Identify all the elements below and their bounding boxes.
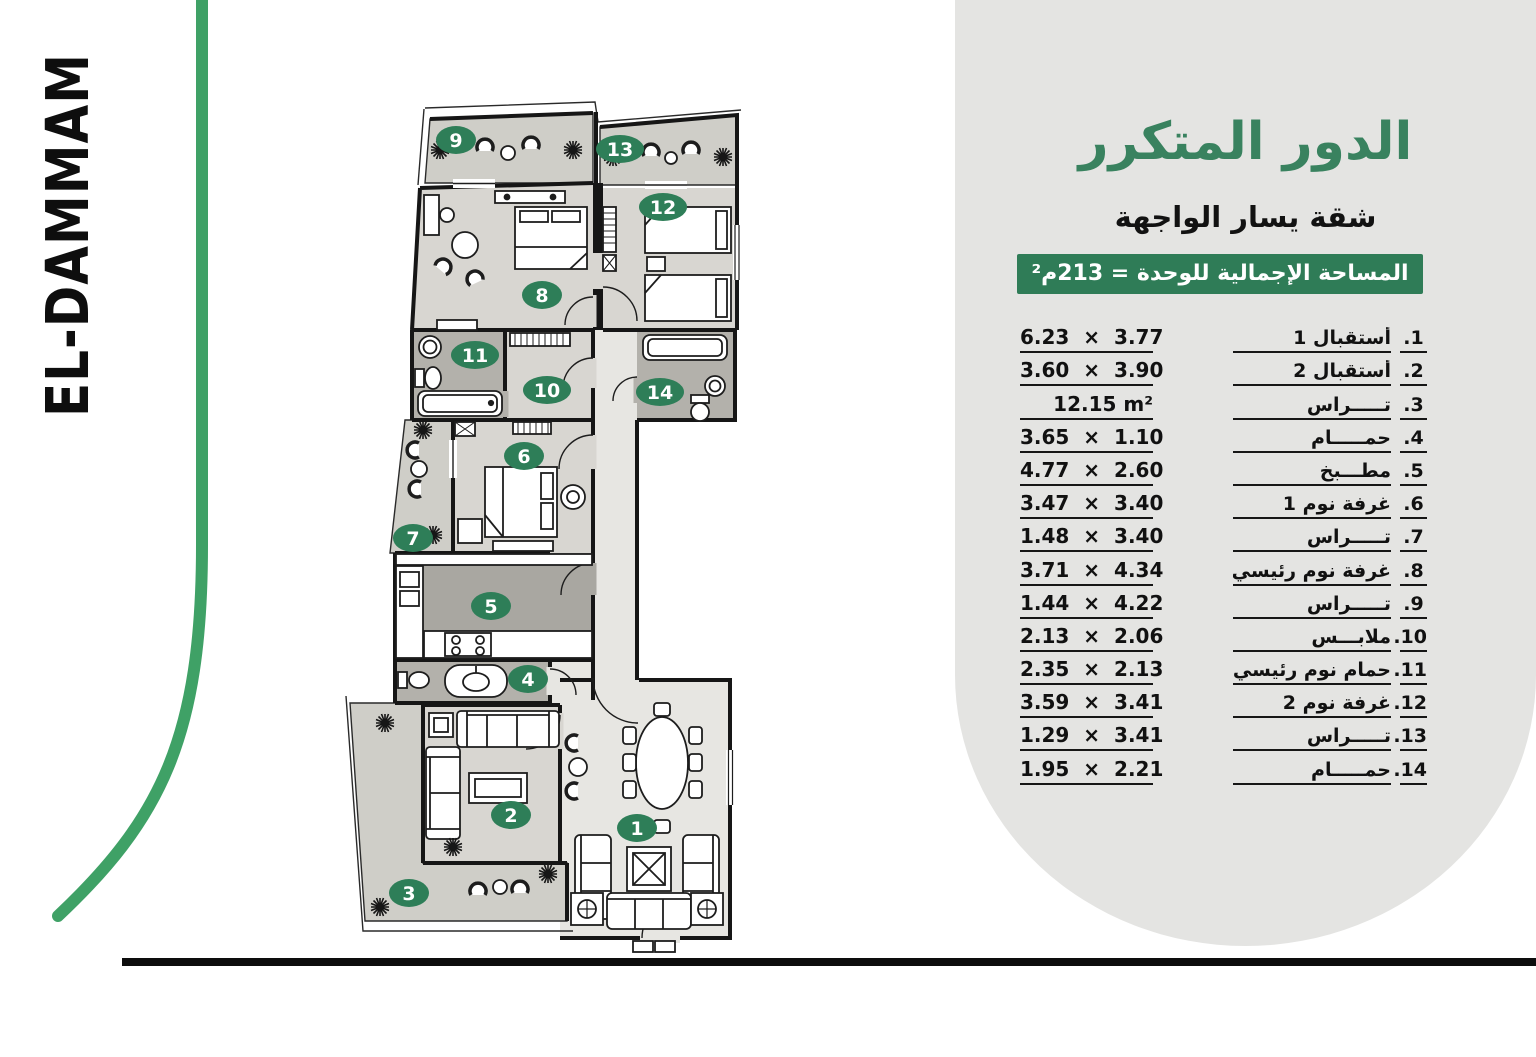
room-number: 14. [1400, 759, 1427, 785]
room-badge-12: 12 [639, 193, 687, 221]
room-name: تـــــراس [1233, 593, 1391, 619]
room-badge-8: 8 [522, 281, 562, 309]
room-number: 9. [1400, 593, 1427, 619]
svg-text:5: 5 [484, 596, 497, 618]
room-dims: 12.15 m² [1020, 392, 1153, 420]
room-name: حمـــــام [1233, 427, 1391, 453]
baseline-rule [122, 958, 1536, 966]
room-row: 8.غرفة نوم رئيسي3.71 × 4.34 [1020, 552, 1427, 585]
room-badge-3: 3 [389, 879, 429, 907]
room-badge-1: 1 [617, 814, 657, 842]
room-number: 1. [1400, 327, 1427, 353]
floor-plan-diagram: 1 2 3 4 5 6 7 8 9 10 11 12 13 14 [345, 95, 745, 955]
room-name: ملابـــس [1233, 626, 1391, 652]
room-row: 9.تـــــراس1.44 × 4.22 [1020, 586, 1427, 619]
svg-text:13: 13 [607, 139, 633, 161]
room-row: 6.غرفة نوم 13.47 × 3.40 [1020, 486, 1427, 519]
svg-text:8: 8 [535, 285, 548, 307]
room-name: حمام نوم رئيسي [1233, 659, 1391, 685]
room-dims: 1.48 × 3.40 [1020, 524, 1153, 552]
room-row: 11.حمام نوم رئيسي2.35 × 2.13 [1020, 652, 1427, 685]
room-badge-6: 6 [504, 442, 544, 470]
room-dims: 6.23 × 3.77 [1020, 325, 1153, 353]
room-row: 14.حمـــــام1.95 × 2.21 [1020, 751, 1427, 784]
room-dims: 1.44 × 4.22 [1020, 591, 1153, 619]
room-badge-5: 5 [471, 592, 511, 620]
svg-text:10: 10 [534, 380, 560, 402]
room-row: 10.ملابـــس2.13 × 2.06 [1020, 619, 1427, 652]
svg-text:2: 2 [504, 805, 517, 827]
room-dims: 3.47 × 3.40 [1020, 491, 1153, 519]
svg-text:1: 1 [630, 818, 643, 840]
svg-text:11: 11 [462, 345, 488, 367]
room-name: غرفة نوم 2 [1233, 692, 1391, 718]
room-name: غرفة نوم 1 [1233, 493, 1391, 519]
room-number: 10. [1400, 626, 1427, 652]
room-row: 7.تـــــراس1.48 × 3.40 [1020, 519, 1427, 552]
svg-text:6: 6 [517, 446, 530, 468]
room-dims: 3.59 × 3.41 [1020, 690, 1153, 718]
svg-text:4: 4 [521, 669, 534, 691]
room-name: تـــــراس [1233, 725, 1391, 751]
room-number: 2. [1400, 360, 1427, 386]
room-row: 4.حمـــــام3.65 × 1.10 [1020, 420, 1427, 453]
room-number: 6. [1400, 493, 1427, 519]
room-number: 11. [1400, 659, 1427, 685]
rooms-list: 1.أستقبال 16.23 × 3.77 2.أستقبال 23.60 ×… [1020, 320, 1427, 785]
room-badge-9: 9 [436, 126, 476, 154]
room-name: مطـــبخ [1233, 460, 1391, 486]
room-name: أستقبال 2 [1233, 360, 1391, 386]
room-name: تـــــراس [1233, 526, 1391, 552]
floorplan-sheet: { "brand": { "name": "EL-DAMMAM" }, "pan… [0, 0, 1536, 1057]
svg-text:12: 12 [650, 197, 676, 219]
room-badge-10: 10 [523, 376, 571, 404]
room-name: تـــــراس [1233, 394, 1391, 420]
page-subtitle: شقة يسار الواجهة [955, 200, 1536, 234]
svg-text:9: 9 [449, 130, 462, 152]
room-row: 1.أستقبال 16.23 × 3.77 [1020, 320, 1427, 353]
area-banner: المساحة الإجمالية للوحدة = 213م² [1017, 254, 1423, 294]
room-number: 7. [1400, 526, 1427, 552]
room-badge-14: 14 [636, 378, 684, 406]
room-row: 13.تـــــراس1.29 × 3.41 [1020, 718, 1427, 751]
room-number: 13. [1400, 725, 1427, 751]
info-panel: الدور المتكرر شقة يسار الواجهة المساحة ا… [955, 0, 1536, 946]
green-curve-decoration [0, 0, 260, 1057]
room-name: غرفة نوم رئيسي [1233, 560, 1391, 586]
room-row: 5.مطـــبخ4.77 × 2.60 [1020, 453, 1427, 486]
room-name: حمـــــام [1233, 759, 1391, 785]
room-badge-11: 11 [451, 341, 499, 369]
room-row: 2.أستقبال 23.60 × 3.90 [1020, 353, 1427, 386]
room-number: 5. [1400, 460, 1427, 486]
room-badge-4: 4 [508, 665, 548, 693]
room-dims: 3.65 × 1.10 [1020, 425, 1153, 453]
page-title: الدور المتكرر [955, 112, 1536, 172]
room-name: أستقبال 1 [1233, 327, 1391, 353]
room-badge-13: 13 [596, 135, 644, 163]
room-badge-7: 7 [393, 524, 433, 552]
room-dims: 3.71 × 4.34 [1020, 558, 1153, 586]
svg-text:3: 3 [402, 883, 415, 905]
svg-text:14: 14 [647, 382, 673, 404]
room-number: 12. [1400, 692, 1427, 718]
room-number: 4. [1400, 427, 1427, 453]
room-dims: 2.35 × 2.13 [1020, 657, 1153, 685]
svg-text:7: 7 [406, 528, 419, 550]
room-number: 3. [1400, 394, 1427, 420]
room-dims: 4.77 × 2.60 [1020, 458, 1153, 486]
room-dims: 2.13 × 2.06 [1020, 624, 1153, 652]
room-number: 8. [1400, 560, 1427, 586]
room-badge-2: 2 [491, 801, 531, 829]
room-dims: 1.95 × 2.21 [1020, 757, 1153, 785]
room-row: 3.تـــــراس12.15 m² [1020, 386, 1427, 419]
room-dims: 3.60 × 3.90 [1020, 358, 1153, 386]
room-dims: 1.29 × 3.41 [1020, 723, 1153, 751]
room-row: 12.غرفة نوم 23.59 × 3.41 [1020, 685, 1427, 718]
